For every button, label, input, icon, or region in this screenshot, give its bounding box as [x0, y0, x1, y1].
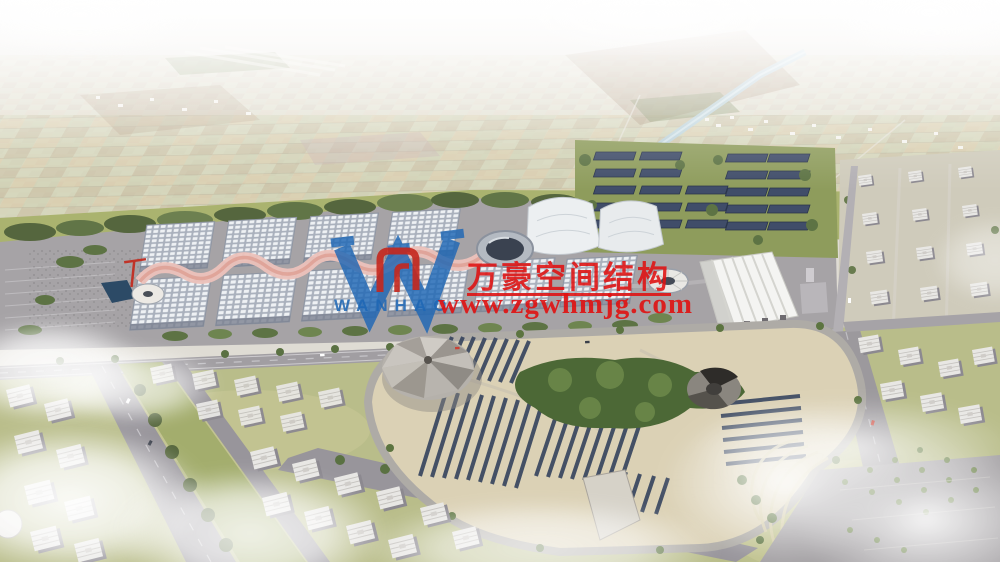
central-round-hall	[477, 231, 533, 267]
hall-annex	[800, 282, 828, 314]
scene-svg	[0, 0, 1000, 562]
aerial-render-image: WANHAO 万豪空间结构 www.zgwhmjg.com	[0, 0, 1000, 562]
